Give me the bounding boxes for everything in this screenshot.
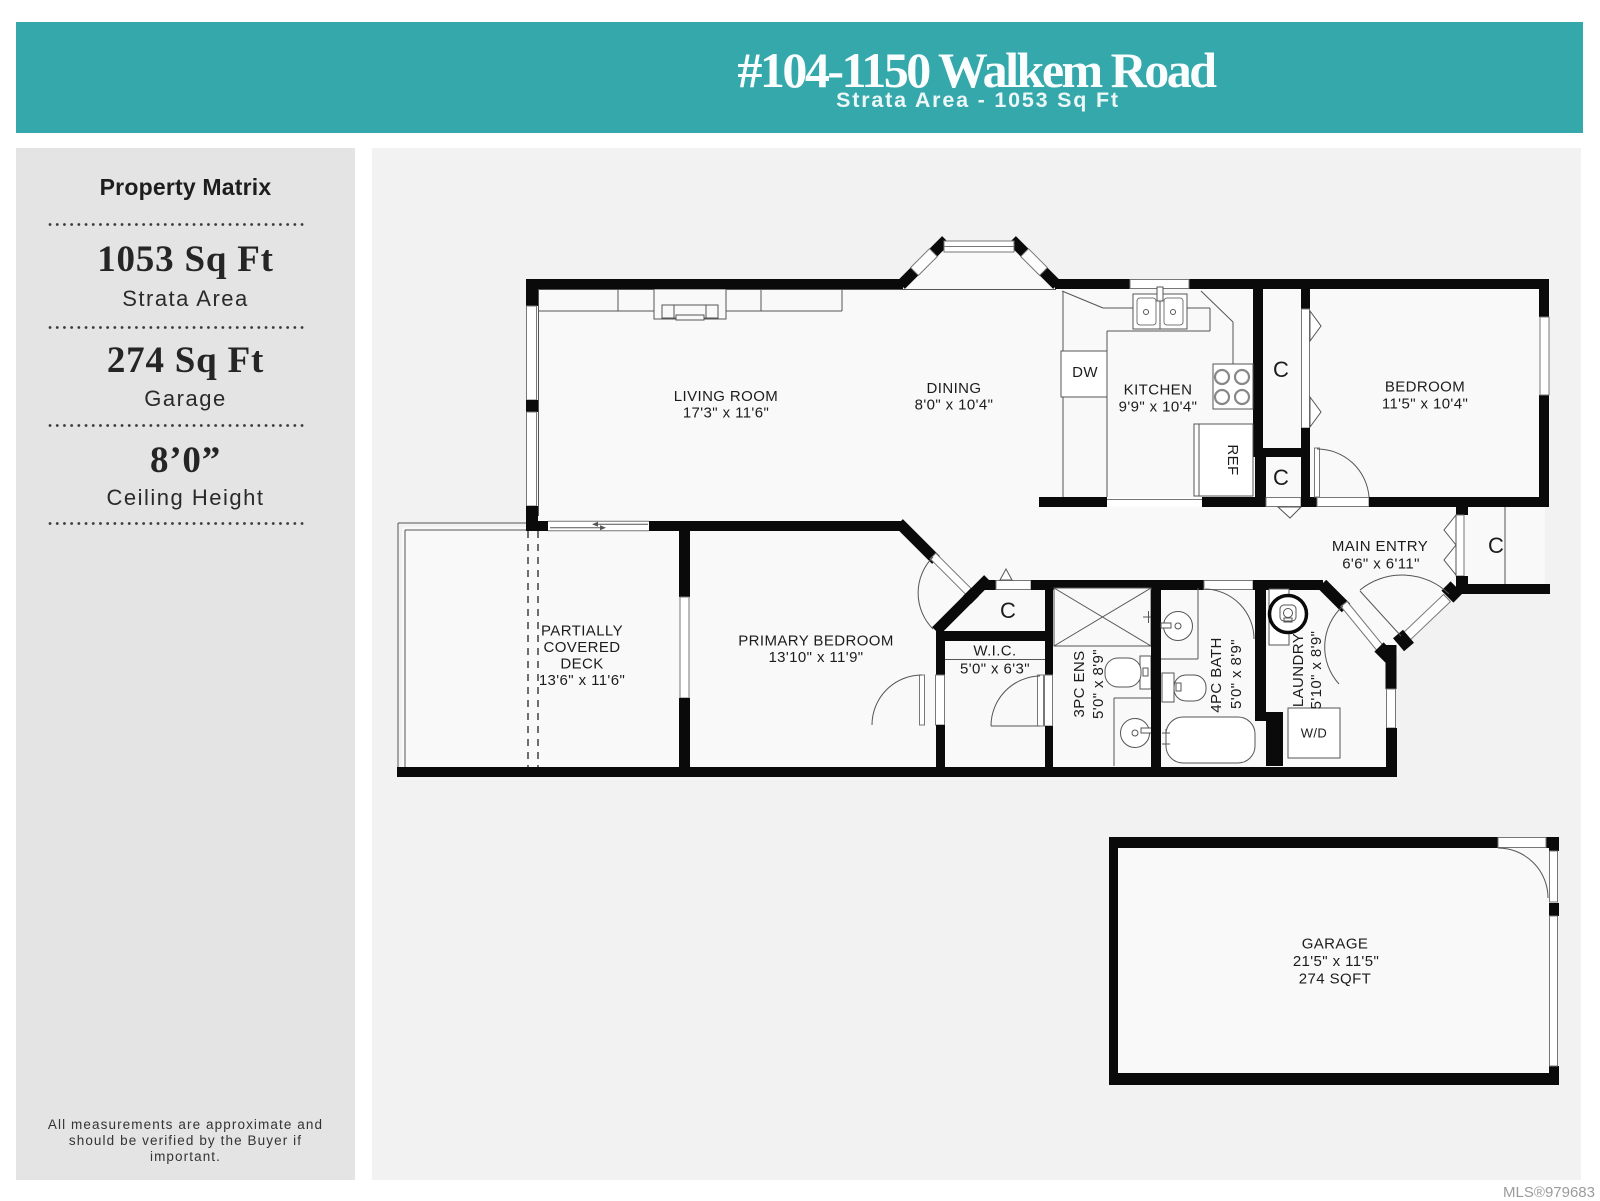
- svg-text:5'0" x 6'3": 5'0" x 6'3": [960, 661, 1030, 678]
- svg-text:DECK: DECK: [560, 656, 603, 673]
- svg-text:REF: REF: [1224, 444, 1241, 475]
- svg-text:GARAGE: GARAGE: [1302, 936, 1369, 953]
- svg-text:13'6" x 11'6": 13'6" x 11'6": [539, 672, 625, 689]
- svg-text:21'5" x 11'5": 21'5" x 11'5": [1293, 953, 1379, 970]
- svg-text:PARTIALLY: PARTIALLY: [541, 623, 623, 640]
- svg-text:C: C: [1000, 598, 1016, 623]
- svg-text:3PC ENS: 3PC ENS: [1071, 651, 1088, 718]
- svg-text:274 SQFT: 274 SQFT: [1299, 971, 1371, 988]
- svg-text:5'10" x 8'9": 5'10" x 8'9": [1308, 631, 1325, 710]
- svg-text:LIVING ROOM: LIVING ROOM: [674, 388, 778, 405]
- svg-text:9'9" x 10'4": 9'9" x 10'4": [1119, 399, 1198, 416]
- svg-text:PRIMARY BEDROOM: PRIMARY BEDROOM: [738, 633, 893, 650]
- svg-text:DINING: DINING: [927, 380, 982, 397]
- svg-text:C: C: [1488, 533, 1504, 558]
- svg-text:BEDROOM: BEDROOM: [1385, 379, 1465, 396]
- svg-text:LAUNDRY: LAUNDRY: [1290, 633, 1307, 707]
- svg-text:MAIN ENTRY: MAIN ENTRY: [1332, 538, 1428, 555]
- svg-text:6'6" x 6'11": 6'6" x 6'11": [1342, 556, 1420, 573]
- svg-text:17'3" x 11'6": 17'3" x 11'6": [683, 405, 769, 422]
- svg-text:W.I.C.: W.I.C.: [973, 643, 1016, 660]
- svg-text:C: C: [1273, 357, 1289, 382]
- svg-text:11'5" x 10'4": 11'5" x 10'4": [1382, 396, 1468, 413]
- svg-text:8'0" x 10'4": 8'0" x 10'4": [915, 397, 994, 414]
- svg-text:5'0" x 8'9": 5'0" x 8'9": [1228, 639, 1245, 709]
- svg-text:5'0" x 8'9": 5'0" x 8'9": [1090, 649, 1107, 719]
- svg-text:DW: DW: [1072, 364, 1098, 381]
- svg-text:KITCHEN: KITCHEN: [1124, 382, 1193, 399]
- svg-text:13'10" x 11'9": 13'10" x 11'9": [768, 649, 863, 666]
- svg-text:4PC BATH: 4PC BATH: [1208, 637, 1225, 712]
- svg-text:COVERED: COVERED: [544, 639, 621, 656]
- svg-text:W/D: W/D: [1301, 726, 1327, 741]
- svg-text:C: C: [1273, 465, 1289, 490]
